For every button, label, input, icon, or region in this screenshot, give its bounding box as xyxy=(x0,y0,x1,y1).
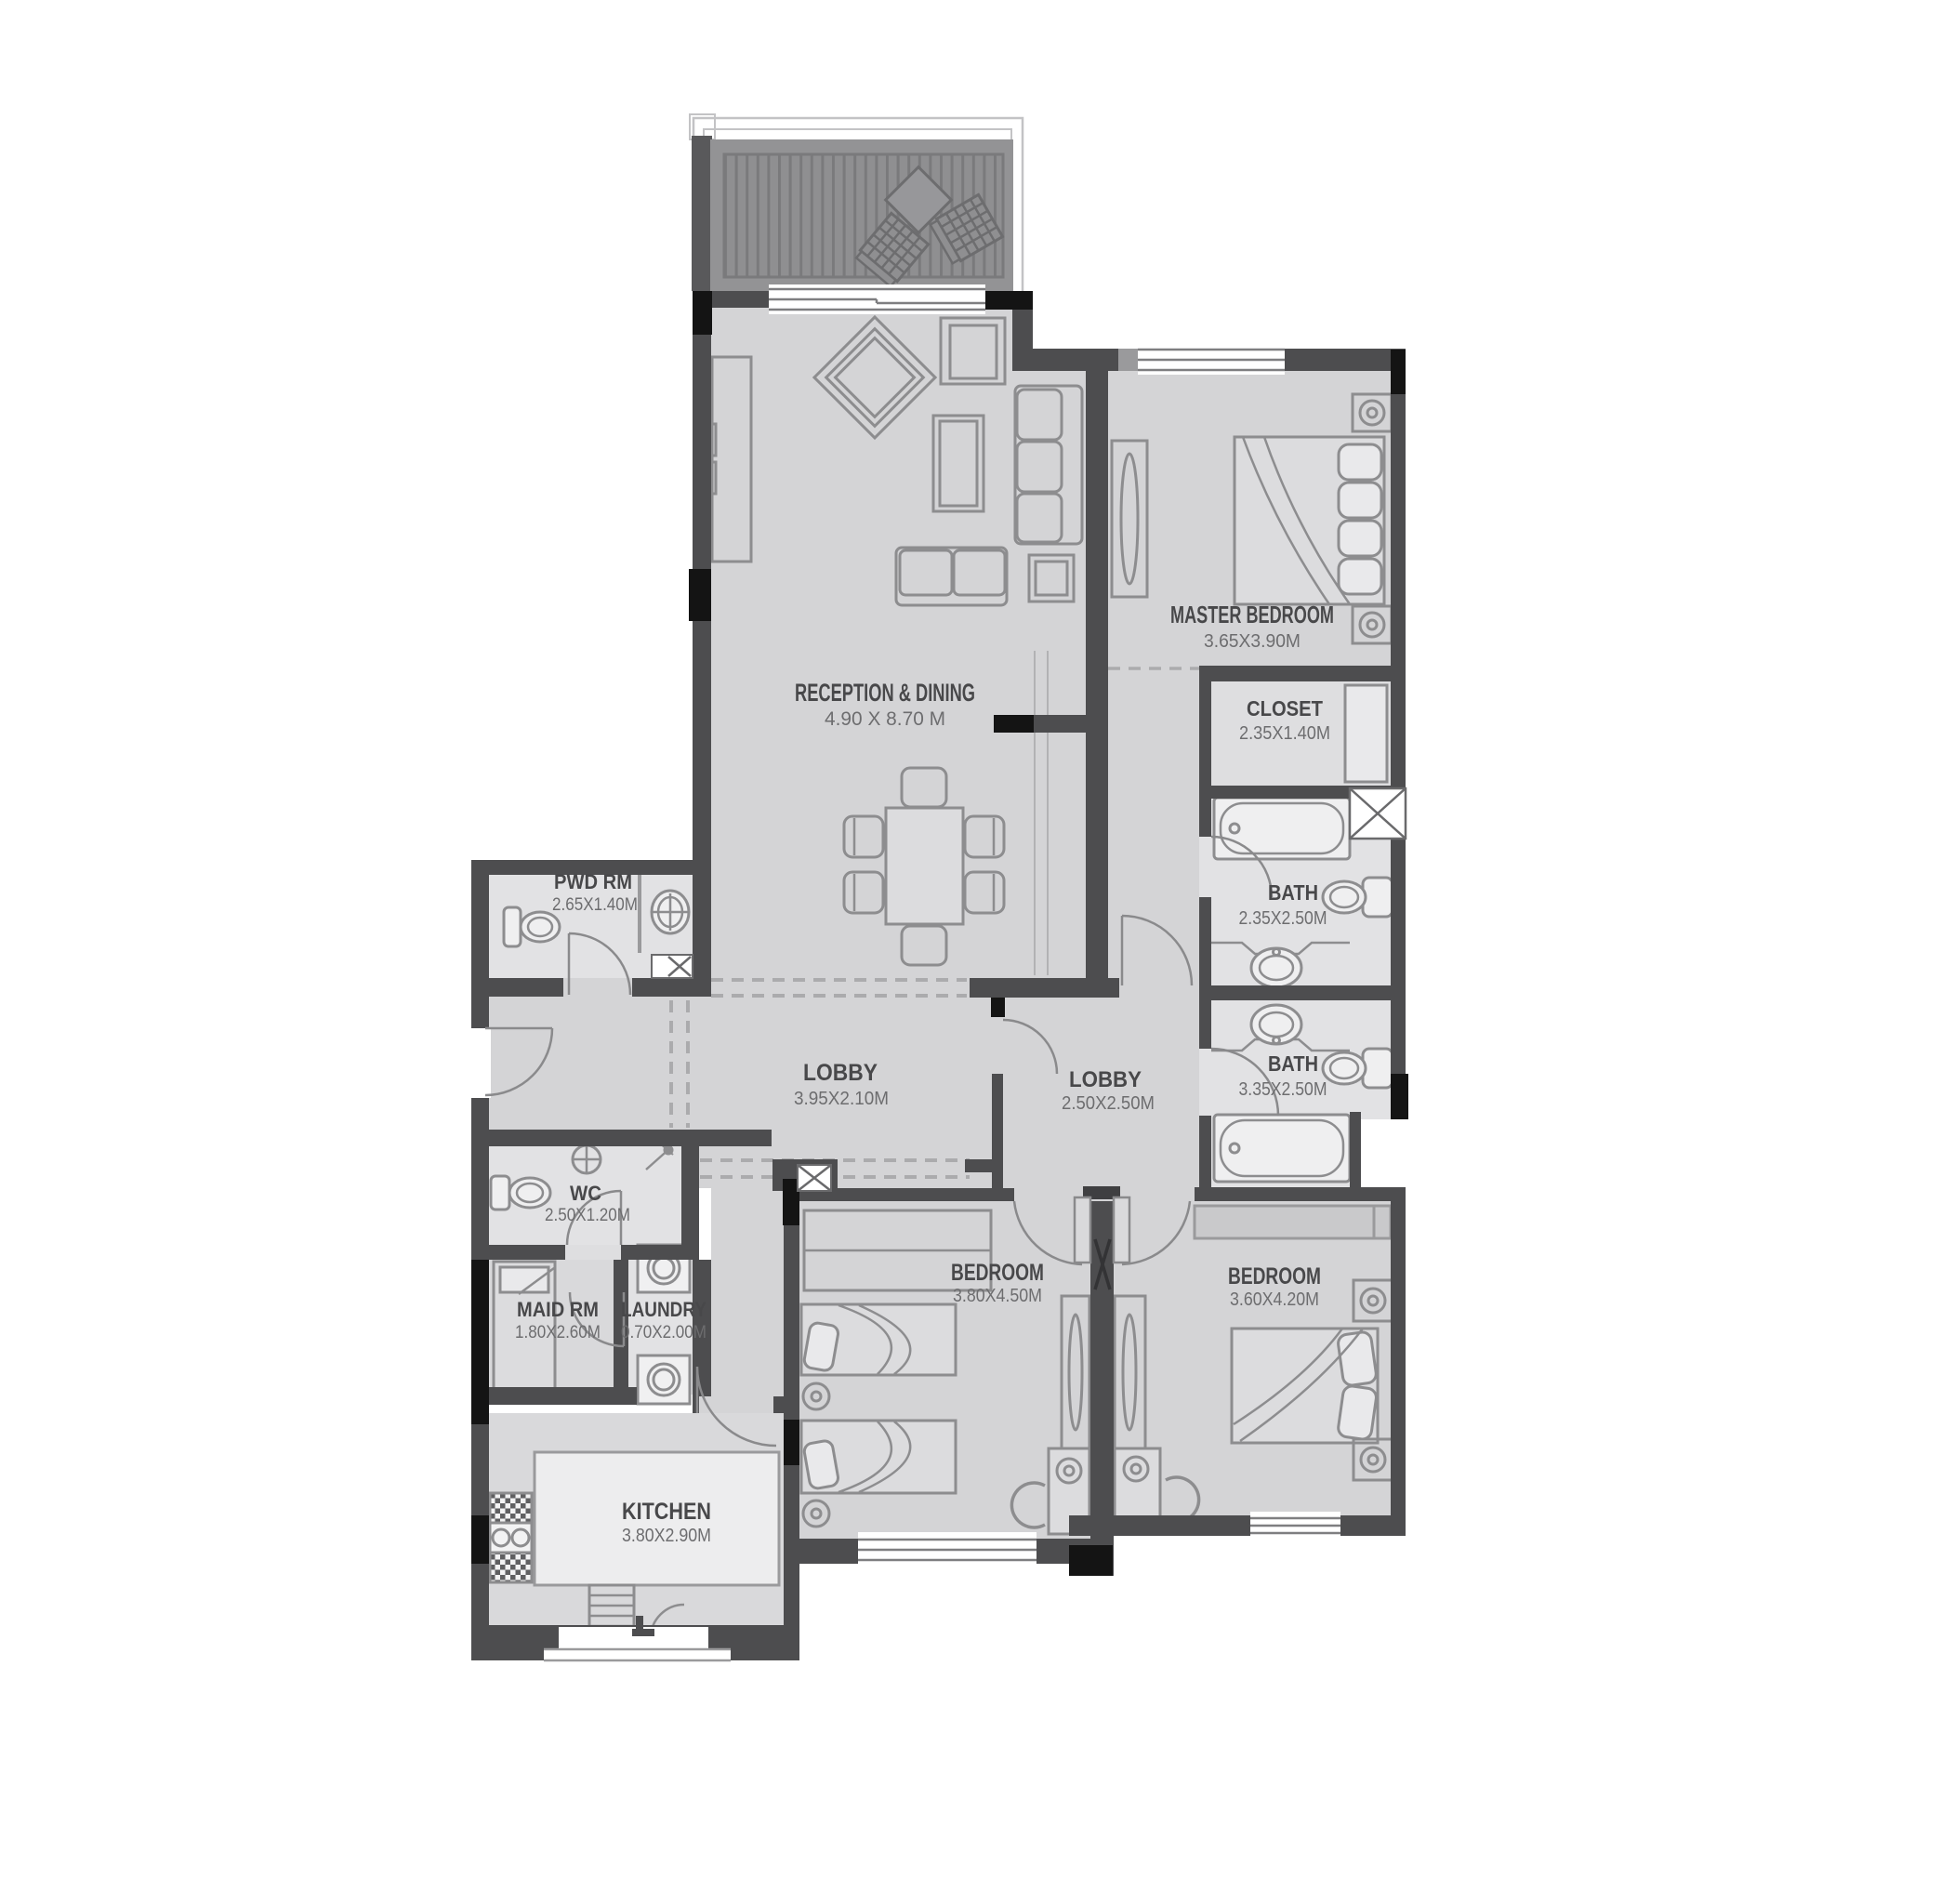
svg-text:RECEPTION & DINING: RECEPTION & DINING xyxy=(795,679,975,707)
svg-text:MASTER BEDROOM: MASTER BEDROOM xyxy=(1170,601,1334,628)
svg-text:2.35X1.40M: 2.35X1.40M xyxy=(1239,723,1330,744)
svg-text:2.50X1.20M: 2.50X1.20M xyxy=(545,1206,630,1225)
svg-text:3.80X4.50M: 3.80X4.50M xyxy=(953,1286,1042,1306)
svg-text:1.80X2.60M: 1.80X2.60M xyxy=(515,1323,601,1342)
svg-text:2.35X2.50M: 2.35X2.50M xyxy=(1239,908,1327,929)
svg-text:BEDROOM: BEDROOM xyxy=(1228,1263,1321,1289)
svg-text:LOBBY: LOBBY xyxy=(1069,1067,1142,1092)
svg-text:2.65X1.40M: 2.65X1.40M xyxy=(552,895,638,915)
svg-text:PWD RM: PWD RM xyxy=(554,870,632,893)
svg-text:3.65X3.90M: 3.65X3.90M xyxy=(1204,631,1301,652)
svg-text:CLOSET: CLOSET xyxy=(1247,696,1323,721)
svg-text:3.95X2.10M: 3.95X2.10M xyxy=(794,1089,889,1109)
svg-text:BATH: BATH xyxy=(1268,880,1318,905)
svg-text:2.50X2.50M: 2.50X2.50M xyxy=(1062,1093,1155,1114)
svg-text:3.35X2.50M: 3.35X2.50M xyxy=(1239,1079,1327,1100)
svg-text:LAUNDRY: LAUNDRY xyxy=(621,1298,706,1321)
svg-text:3.80X2.90M: 3.80X2.90M xyxy=(622,1526,711,1546)
svg-text:LOBBY: LOBBY xyxy=(803,1060,878,1086)
svg-text:BEDROOM: BEDROOM xyxy=(951,1260,1044,1286)
svg-text:3.60X4.20M: 3.60X4.20M xyxy=(1230,1289,1319,1310)
svg-text:MAID RM: MAID RM xyxy=(517,1298,599,1321)
svg-text:BATH: BATH xyxy=(1268,1051,1318,1076)
svg-text:WC: WC xyxy=(570,1182,601,1205)
svg-text:4.90 X 8.70 M: 4.90 X 8.70 M xyxy=(825,708,945,730)
svg-text:KITCHEN: KITCHEN xyxy=(622,1499,711,1525)
svg-text:0.70X2.00M: 0.70X2.00M xyxy=(621,1323,706,1342)
